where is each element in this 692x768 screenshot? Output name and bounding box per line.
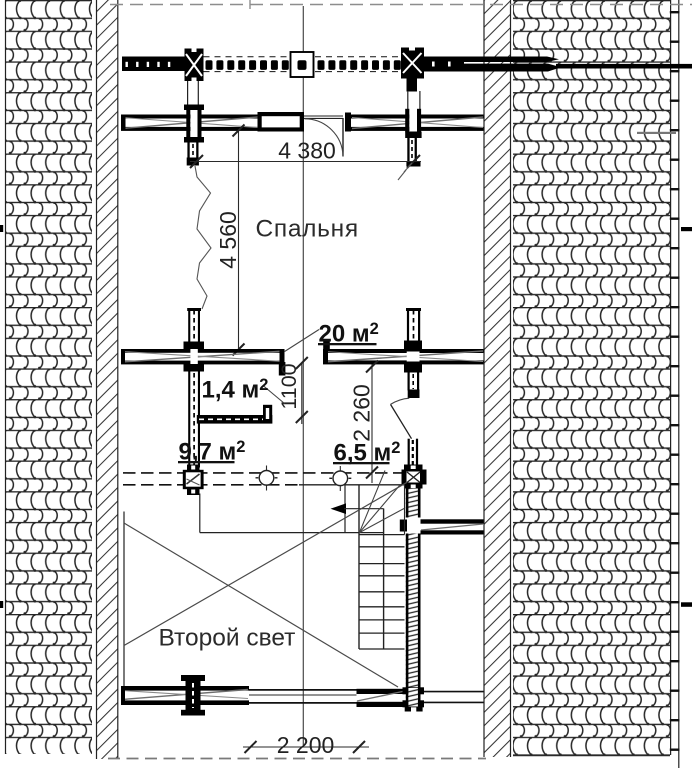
svg-text:4 560: 4 560 xyxy=(215,211,241,269)
svg-text:4 380: 4 380 xyxy=(278,138,336,164)
svg-text:2 200: 2 200 xyxy=(277,732,335,758)
svg-text:Второй свет: Второй свет xyxy=(159,625,296,652)
svg-text:Спальня: Спальня xyxy=(256,216,359,243)
svg-text:1,4 м2: 1,4 м2 xyxy=(202,376,269,404)
svg-text:2 260: 2 260 xyxy=(349,384,375,442)
svg-text:1100: 1100 xyxy=(277,363,301,409)
